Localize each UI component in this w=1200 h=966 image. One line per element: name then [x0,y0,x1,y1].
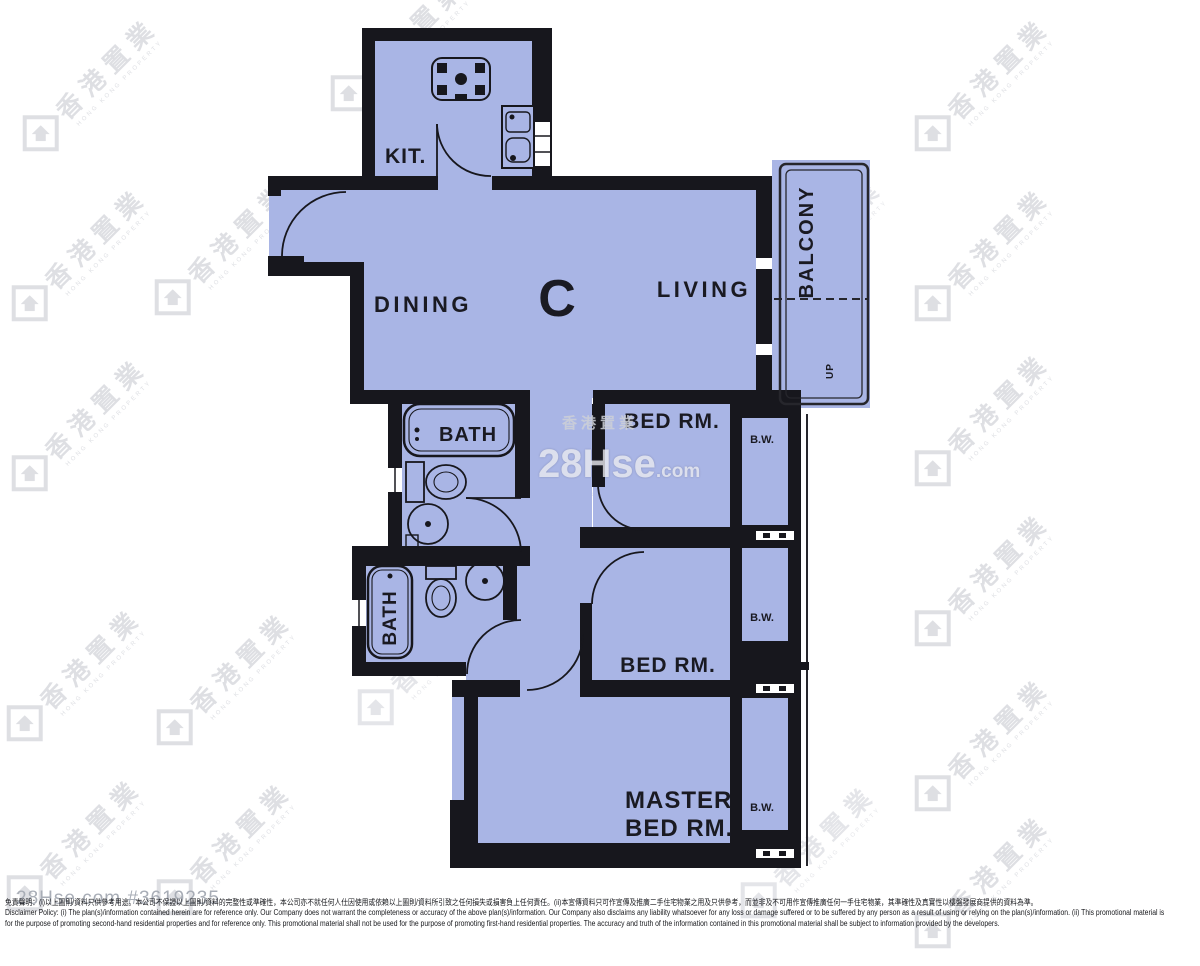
label-dining: DINING [374,292,472,317]
label-bath-upper: BATH [439,424,497,446]
label-master-line2: BED RM. [625,815,733,842]
bay-window-2-floor [742,548,788,641]
label-up: UP [825,363,836,379]
label-balcony: BALCONY [796,186,818,299]
kitchen-sink-icon [502,106,534,168]
label-bay-window-1: B.W. [750,434,774,446]
site-watermark: 28Hse.com [538,442,700,487]
floorplan-page: 香港置業 HONG KONG PROPERTY 香港置業 HONG KONG P… [0,0,1200,934]
brand-cn-horizontal-watermark: 香港置業 [562,412,638,433]
label-bedroom-lower: BED RM. [620,654,716,677]
label-bay-window-3: B.W. [750,802,774,814]
balcony-floor [772,160,870,408]
label-unit: C [538,270,576,328]
label-kitchen: KIT. [385,145,426,168]
label-master-line1: MASTER [625,787,732,814]
site-watermark-main: 28Hse [538,442,656,486]
disclaimer-line-en-1: Disclaimer Policy: (i) The plan(s)/infor… [5,908,1164,917]
disclaimer-line-cn: 免責聲明：(i)以上圖則/資料只供參考用途。本公司不保證以上圖則/資料的完整性或… [5,897,1037,908]
site-watermark-suffix: .com [656,461,700,482]
label-bath-lower: BATH [380,590,401,645]
entrance-doorway-floor [269,192,283,258]
label-bay-window-2: B.W. [750,612,774,624]
label-bedroom-upper: BED RM. [624,410,720,433]
disclaimer-line-en-2: for the purpose of promoting second-hand… [5,919,1000,928]
label-living: LIVING [657,277,751,302]
